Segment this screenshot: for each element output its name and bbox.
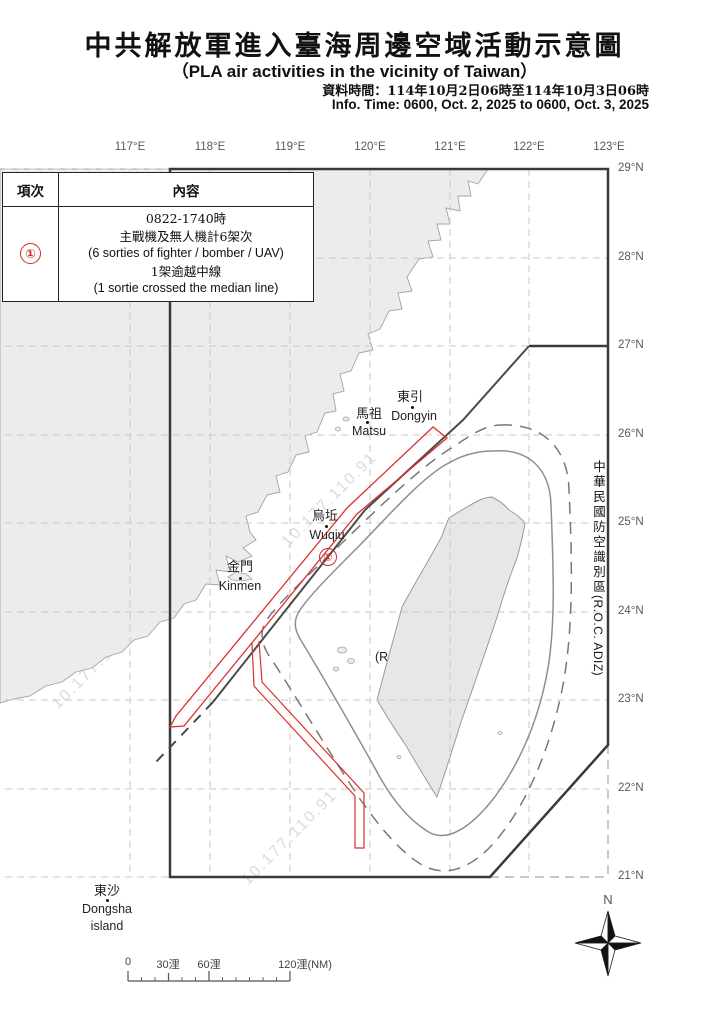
- place-matsu-cn: 馬祖: [356, 403, 382, 422]
- taiwan-island: [377, 497, 525, 797]
- col-header-content: 內容: [59, 173, 313, 206]
- matsu-islet: [343, 417, 349, 421]
- place-kinmen-cn: 金門: [227, 556, 253, 575]
- activity-table-header: 項次 內容: [3, 173, 313, 207]
- flight-path-south-hook: [252, 641, 364, 848]
- activity-sorties-en: (6 sorties of fighter / bomber / UAV): [88, 245, 284, 263]
- liuqiu-islet: [397, 756, 401, 759]
- place-wuqiu-en: Wuqiu: [309, 528, 344, 542]
- activity-crossing-en: (1 sortie crossed the median line): [94, 280, 279, 298]
- place-dongsha-island: island: [91, 919, 124, 933]
- place-matsu-en: Matsu: [352, 424, 386, 438]
- pla-activity-map-page: 中共解放軍進入臺海周邊空域活動示意圖 （PLA air activities i…: [0, 0, 709, 1024]
- activity-table: 項次 內容 ① 0822-1740時 主戰機及無人機計6架次 (6 sortie…: [2, 172, 314, 302]
- place-wuqiu-cn: 烏坵: [312, 505, 338, 524]
- place-dongyin-cn: 東引: [397, 386, 423, 405]
- scale-bar: [128, 971, 290, 981]
- penghu-islet-3: [334, 667, 339, 671]
- penghu-islet: [338, 647, 347, 653]
- activity-time: 0822-1740時: [146, 210, 226, 228]
- place-dongsha-cn: 東沙: [94, 880, 120, 899]
- compass-rose-icon: [575, 911, 641, 976]
- row-number-badge: ①: [20, 243, 41, 264]
- col-header-item: 項次: [3, 173, 59, 206]
- activity-sorties-cn: 主戰機及無人機計6架次: [120, 228, 253, 246]
- activity-crossing-cn: 1架逾越中線: [151, 263, 221, 281]
- map-activity-marker: ①: [319, 548, 337, 566]
- matsu-islet-2: [336, 427, 341, 431]
- activity-table-row: ① 0822-1740時 主戰機及無人機計6架次 (6 sorties of f…: [3, 207, 313, 301]
- penghu-islet-2: [348, 659, 355, 664]
- green-island-islet: [498, 732, 502, 735]
- place-dongsha-en: Dongsha: [82, 902, 132, 916]
- place-kinmen-en: Kinmen: [219, 579, 261, 593]
- map-canvas: [0, 0, 709, 1024]
- place-dongyin-en: Dongyin: [391, 409, 437, 423]
- median-line-dashed-tail: [156, 702, 213, 762]
